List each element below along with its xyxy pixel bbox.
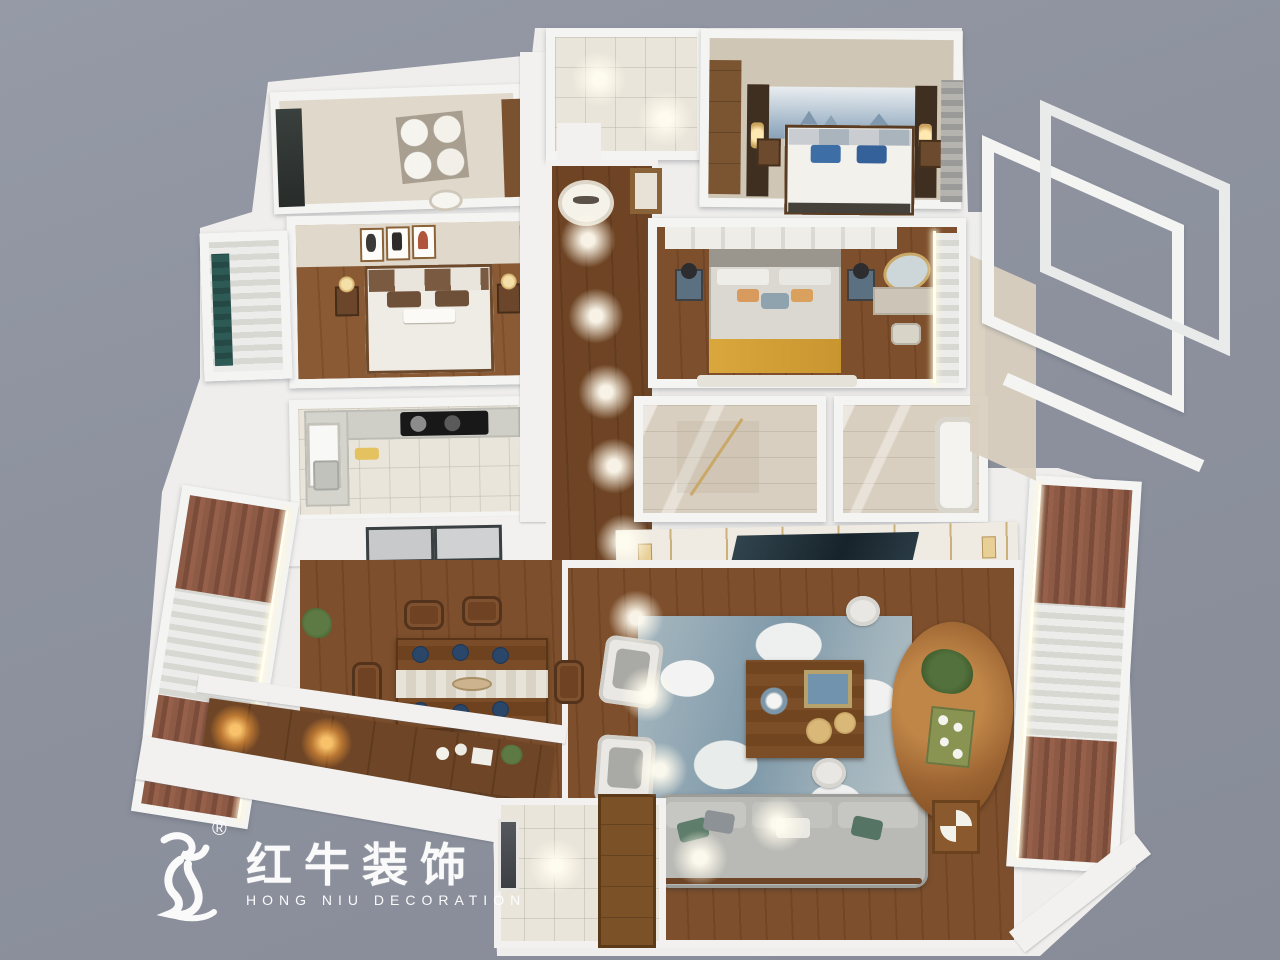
headboard-wall — [665, 227, 897, 249]
plate-art — [434, 145, 467, 178]
wall-art — [386, 226, 411, 260]
room-display — [270, 84, 526, 215]
gray-curtain — [940, 80, 963, 202]
plate-art — [398, 116, 431, 149]
plant — [499, 743, 524, 766]
place-setting — [452, 644, 469, 661]
bedside-rug — [697, 375, 857, 387]
cooktop — [400, 411, 488, 437]
shower-step — [557, 123, 601, 161]
registered-mark: ® — [212, 818, 227, 841]
table-lamp — [681, 263, 697, 279]
vanity-table — [873, 287, 939, 315]
dishware — [435, 746, 450, 761]
bed — [709, 249, 841, 373]
cutting-board — [355, 448, 379, 460]
dishware-box — [471, 747, 493, 766]
door-frame — [630, 168, 662, 214]
bonsai-plant — [919, 647, 975, 696]
armchair — [598, 634, 665, 709]
plate-art — [401, 149, 434, 182]
window-wall-right — [1006, 475, 1142, 873]
tea-tray — [926, 706, 976, 768]
place-setting — [492, 647, 509, 664]
dining-chair — [462, 596, 502, 626]
brand-name-english: HONG NIU DECORATION — [246, 892, 526, 908]
side-table — [932, 800, 980, 854]
room-bathroom-a — [634, 396, 826, 522]
flower-vase — [756, 686, 792, 716]
rust-drape — [1016, 736, 1117, 864]
basket — [834, 712, 856, 734]
plate-art — [431, 113, 464, 146]
glass-door — [434, 525, 503, 562]
bed — [784, 125, 915, 216]
downlight-glow — [571, 51, 627, 107]
framed-art — [804, 670, 852, 708]
window-sheer — [935, 233, 959, 383]
basket — [806, 718, 832, 744]
wardrobe — [708, 60, 741, 194]
dining-chair — [554, 660, 584, 704]
wall-art — [412, 225, 437, 259]
sofa — [656, 794, 928, 888]
round-mirror — [558, 180, 614, 226]
floorplan-render: ® 红牛装饰 HONG NIU DECORATION — [0, 0, 1280, 960]
downlight-glow — [637, 91, 693, 147]
brand-watermark: ® 红牛装饰 HONG NIU DECORATION — [150, 824, 610, 934]
kitchen-dining-wall — [282, 515, 579, 566]
table-lamp — [853, 263, 869, 279]
led-strip — [933, 231, 936, 383]
fan-decor — [940, 810, 972, 842]
drum-stool — [846, 596, 880, 626]
pillow-white — [776, 818, 810, 838]
rust-drape — [175, 495, 288, 603]
bed — [364, 264, 494, 374]
plant — [302, 608, 332, 638]
dishware — [454, 743, 468, 757]
balcony-frame — [962, 150, 1242, 490]
glass-door — [366, 526, 435, 563]
place-setting — [412, 646, 429, 663]
wall-sconce — [982, 536, 996, 558]
room-bedroom-3 — [648, 218, 966, 388]
room-kitchen — [289, 396, 529, 524]
bay-window-left — [199, 231, 292, 382]
centerpiece — [452, 677, 492, 691]
room-master-bedroom — [699, 29, 963, 209]
nightstand — [757, 138, 781, 166]
rust-drape — [1031, 484, 1132, 608]
sink — [313, 460, 340, 490]
teal-curtain — [211, 254, 233, 367]
room-shower — [546, 28, 706, 160]
dining-chair — [404, 600, 444, 630]
nightstand — [919, 140, 943, 168]
wall-art — [360, 228, 385, 262]
vanity-stool — [891, 323, 921, 345]
wall-left-corridor — [520, 52, 548, 522]
brand-name-chinese: 红牛装饰 — [246, 842, 526, 888]
dark-window — [276, 108, 305, 207]
coffee-table — [746, 660, 864, 758]
hongniu-bull-logo-icon — [150, 830, 236, 922]
drum-stool — [812, 758, 846, 788]
plate-wall-art — [396, 110, 470, 184]
